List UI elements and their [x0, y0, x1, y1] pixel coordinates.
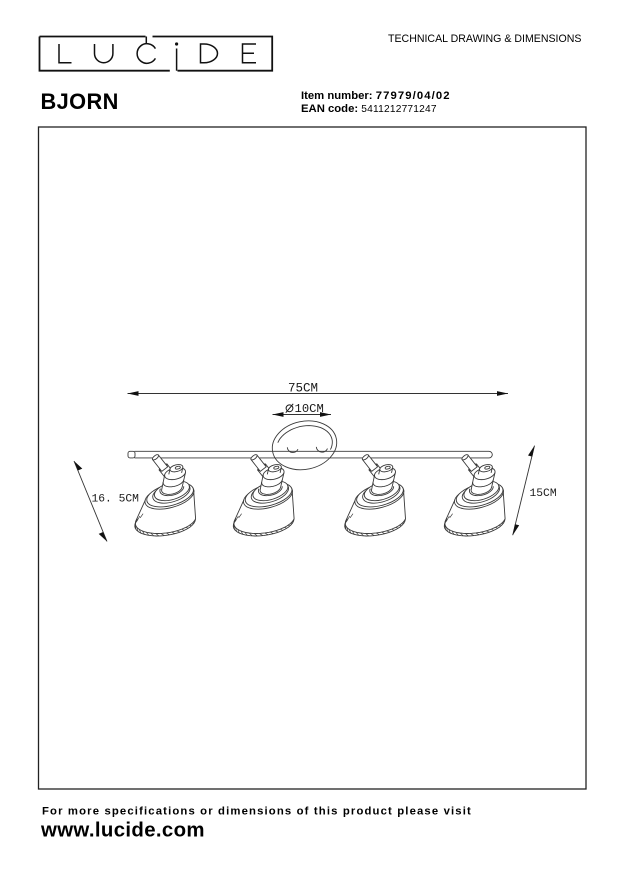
svg-text:TECHNICAL DRAWING & DIMENSIONS: TECHNICAL DRAWING & DIMENSIONS: [388, 33, 581, 45]
svg-text:For more specifications or dim: For more specifications or dimensions of…: [42, 806, 472, 818]
svg-text:75CM: 75CM: [288, 382, 318, 396]
svg-text:BJORN: BJORN: [41, 89, 119, 114]
svg-text:www.lucide.com: www.lucide.com: [40, 820, 205, 842]
svg-text:16. 5CM: 16. 5CM: [92, 494, 140, 506]
svg-text:15CM: 15CM: [530, 488, 557, 500]
svg-text:EAN code: 5411212771247: EAN code: 5411212771247: [301, 103, 437, 115]
svg-text:10CM: 10CM: [295, 402, 324, 416]
svg-text:Item number: 77979/04/02: Item number: 77979/04/02: [301, 90, 451, 102]
